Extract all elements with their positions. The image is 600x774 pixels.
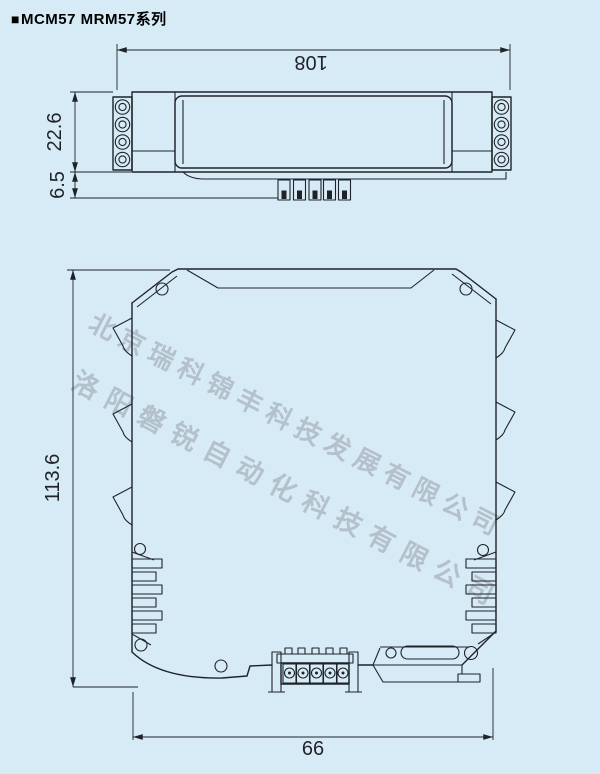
connector-screw-terminals xyxy=(283,664,349,683)
side-clips-right xyxy=(496,320,515,520)
side-clips-left xyxy=(113,318,132,525)
page-title: ■MCM57 MRM57系列 xyxy=(11,8,167,29)
dim-label-22-6: 22.6 xyxy=(44,113,66,152)
dimension-depth-22-6: 22.6 xyxy=(44,92,131,172)
top-view-drawing: 108 22.6 6.5 xyxy=(44,44,511,200)
dimension-pin-6-5: 6.5 xyxy=(47,171,278,199)
foot-slot xyxy=(401,646,459,659)
title-bullet: ■ xyxy=(11,11,20,27)
top-view-terminals-right xyxy=(492,97,511,170)
din-rail-foot xyxy=(373,631,496,682)
dim-label-108: 108 xyxy=(294,51,327,73)
series-title-text: MCM57 MRM57系列 xyxy=(21,11,167,28)
bottom-connector xyxy=(268,648,362,692)
top-view-terminals-left xyxy=(113,97,132,170)
bottom-base xyxy=(132,631,496,682)
top-view-bus-pins xyxy=(183,172,506,200)
dim-label-66: 66 xyxy=(302,738,324,760)
foot-hole-right xyxy=(465,647,478,660)
terminal-stack-left xyxy=(132,544,162,652)
dim-label-6-5: 6.5 xyxy=(47,171,69,199)
datasheet-dimension-page: ■MCM57 MRM57系列 北京瑞科锦丰科技发展有限公司 洛阳磐锐自动化科技有… xyxy=(0,0,600,774)
base-hole-left xyxy=(215,660,227,672)
dim-label-113-6: 113.6 xyxy=(42,454,64,503)
front-view-housing xyxy=(132,269,496,652)
front-view-drawing: 113.6 66 xyxy=(42,269,515,760)
top-screw-hole-left xyxy=(156,283,168,295)
foot-hole-left xyxy=(386,648,396,658)
technical-drawing: 108 22.6 6.5 xyxy=(0,0,600,774)
top-view-module-body xyxy=(113,92,511,200)
terminal-stack-right xyxy=(466,545,496,645)
dimension-width-108: 108 xyxy=(117,44,510,90)
